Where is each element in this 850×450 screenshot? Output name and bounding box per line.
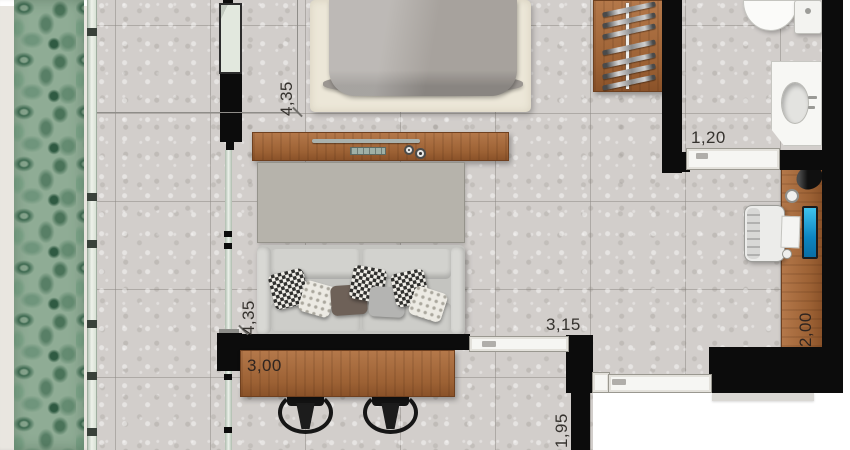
- door-handle: [696, 153, 708, 159]
- bathroom-wall-left: [662, 0, 682, 173]
- faucet-handle: [808, 106, 815, 109]
- wall-cap: [226, 142, 234, 150]
- entry-wall-lower: [571, 393, 590, 450]
- dim-label-living-depth: 4,35: [240, 289, 257, 335]
- speaker: [415, 148, 426, 159]
- mouse: [782, 249, 792, 259]
- glass-mullion: [224, 427, 232, 433]
- bathroom-sliding-door: [686, 148, 780, 170]
- faucet: [808, 96, 817, 99]
- door-track: [712, 393, 814, 401]
- bar-stool: [363, 391, 418, 434]
- cup: [785, 189, 799, 203]
- dim-label-bedroom-depth: 4,35: [278, 70, 295, 116]
- dim-label-bathroom-door: 1,20: [691, 129, 726, 146]
- facade-mullion: [87, 428, 97, 436]
- wall-pier-left: [220, 74, 242, 142]
- door-handle: [482, 341, 496, 347]
- closet: [593, 0, 663, 92]
- notepad: [780, 216, 800, 249]
- floor-plan-canvas: 4,35 1,20 4,35 3,15 3,00 2,00 1,95: [0, 0, 850, 450]
- glass-facade: [87, 0, 97, 450]
- tv: [312, 139, 420, 143]
- dimension-line-vertical: [297, 0, 298, 113]
- exterior-wall-right: [822, 0, 843, 393]
- entry-wall-corner: [566, 335, 593, 393]
- glass-mullion: [224, 231, 232, 237]
- dim-label-counter: 3,00: [247, 357, 282, 374]
- chair-back: [747, 208, 760, 259]
- toilet-flush-button: [805, 8, 811, 14]
- bar-stool: [278, 391, 333, 434]
- sofa-armrest: [257, 247, 271, 334]
- garden-hedge: [14, 0, 84, 450]
- facade-mullion: [87, 320, 97, 328]
- toilet-tank: [794, 0, 822, 34]
- kitchen-wall: [229, 334, 470, 350]
- dimension-line-horizontal: [97, 112, 299, 113]
- facade-mullion: [87, 193, 97, 201]
- bed-blanket: [329, 0, 517, 96]
- sofa: [257, 245, 465, 336]
- laptop: [802, 206, 818, 259]
- window-glass-left-lower: [225, 371, 232, 450]
- glass-mullion: [224, 374, 232, 380]
- dim-label-desk: 2,00: [797, 299, 814, 347]
- facade-mullion: [87, 240, 97, 248]
- glass-mullion: [224, 243, 232, 249]
- sofa-armrest: [451, 247, 465, 334]
- rug: [257, 162, 465, 243]
- facade-mullion: [87, 372, 97, 380]
- sink-basin: [781, 82, 809, 124]
- dim-label-entry-depth: 1,95: [553, 398, 570, 448]
- dim-label-entry-span: 3,15: [546, 316, 581, 333]
- desk-chair: [744, 205, 785, 262]
- window-panel: [219, 3, 242, 74]
- speaker: [404, 145, 414, 155]
- door-handle: [612, 379, 626, 385]
- facade-mullion: [87, 28, 97, 36]
- window-glass-left: [225, 150, 232, 333]
- media-devices: [350, 147, 386, 155]
